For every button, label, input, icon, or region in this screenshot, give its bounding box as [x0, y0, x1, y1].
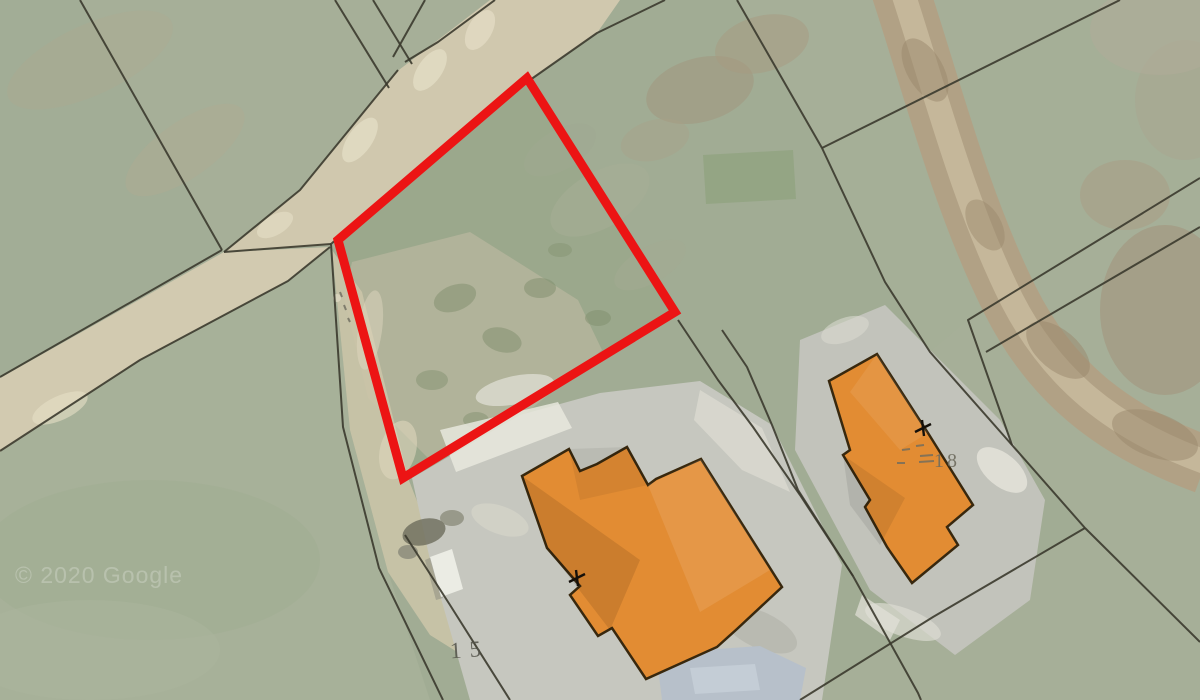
map-dash-mark — [920, 455, 933, 456]
map-viewport[interactable]: 15 18 © 2020 Google — [0, 0, 1200, 700]
map-dash-mark — [902, 449, 910, 450]
house-number-18: 18 — [934, 450, 960, 472]
map-dash-mark — [919, 461, 934, 462]
terrain-patch — [416, 370, 448, 390]
terrain-patch — [440, 510, 464, 526]
terrain-patch — [703, 150, 796, 204]
terrain-patch — [524, 278, 556, 298]
terrain-patch — [1100, 225, 1200, 395]
parcel-boundary-line — [1085, 528, 1200, 642]
map-dash-mark — [916, 445, 924, 446]
terrain-patch — [548, 243, 572, 257]
terrain-patch — [585, 310, 611, 326]
satellite-map[interactable]: 15 18 © 2020 Google — [0, 0, 1200, 700]
terrain-patch — [690, 664, 760, 694]
terrain-patch — [1080, 160, 1170, 230]
house-number-15: 15 — [449, 636, 490, 664]
google-attribution-watermark: © 2020 Google — [15, 562, 183, 588]
parcel-boundary-line — [393, 0, 425, 57]
